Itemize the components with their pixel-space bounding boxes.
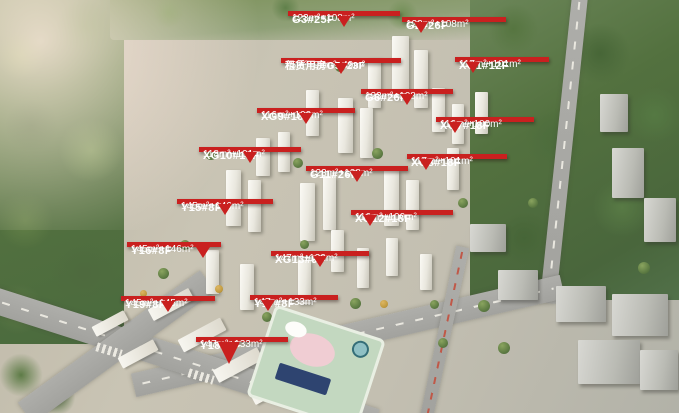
callout-pointer (196, 247, 210, 258)
building-lowrise (118, 339, 159, 368)
tree (498, 342, 510, 354)
building-tower (323, 176, 336, 230)
building-gray (644, 198, 676, 242)
callout-pointer (243, 152, 257, 163)
label-y19-8f: Y19#8F 145m²+145m² (121, 296, 215, 301)
callout-pointer (334, 63, 348, 74)
callout-pointer (448, 122, 462, 133)
tree (458, 198, 468, 208)
callout-pointer (261, 300, 275, 311)
tree (215, 285, 223, 293)
label-xg1-12f: XG1#12F 117m²+101m² (455, 57, 549, 62)
unit-areas: 145m²+146m² (131, 244, 194, 256)
building-gray (600, 94, 628, 132)
tree (438, 338, 448, 348)
callout-pointer (313, 256, 327, 267)
callout-pointer (337, 16, 351, 27)
callout-pointer (161, 301, 175, 312)
building-tower (338, 98, 353, 153)
unit-areas: 145m²+146m² (181, 201, 244, 213)
unit-areas: 75m²+99m²+49m² (285, 60, 365, 72)
building-tower (386, 238, 398, 276)
building-gray (470, 224, 506, 252)
unit-areas: 145m²+145m² (125, 298, 188, 310)
aerial-site-plan: G3#25F 123m²+108m² G2#26F 123m²+108m² 租赁… (0, 0, 679, 413)
callout-pointer (218, 204, 232, 215)
label-y17-8f: Y17#8F 147m²+133m² (250, 295, 338, 300)
tree (528, 198, 538, 208)
building-tower (226, 170, 241, 226)
label-g11-26f: G11#26F 123m²+108m² (306, 166, 408, 171)
label-y16-8f: Y16#8F 145m²+146m² (127, 242, 221, 247)
label-g6-26f: G6#26F 123m²+108m² (361, 89, 453, 94)
building-gray (612, 148, 644, 198)
callout-pointer (363, 215, 377, 226)
unit-areas: 123m²+108m² (365, 91, 428, 103)
callout-pointer (466, 62, 480, 73)
building-tower (420, 254, 432, 290)
callout-pointer (400, 94, 414, 105)
label-g2-26f: G2#26F 123m²+108m² (402, 17, 506, 22)
callout-pointer (350, 171, 364, 182)
unit-areas: 116m²+100m² (261, 110, 323, 122)
tree (380, 300, 388, 308)
building-gray (498, 270, 538, 300)
callout-pointer (419, 159, 433, 170)
tree (300, 240, 309, 249)
building-gray (612, 294, 668, 336)
label-xg7-18f: XG7#18F 116m²+100m² (436, 117, 534, 122)
label-g5-23f: 租赁用房G5#23F 75m²+99m²+49m² (281, 58, 401, 63)
tree (372, 148, 383, 159)
callout-pointer (218, 342, 240, 364)
building-tower (360, 108, 373, 158)
tree (293, 158, 303, 168)
building-gray (640, 350, 678, 390)
building-tower (240, 264, 254, 310)
label-xg8-18f: XG8#18F 117m²+101m² (407, 154, 507, 159)
unit-areas: 147m²+132m² (275, 253, 338, 265)
tree (478, 300, 490, 312)
tree (430, 300, 439, 309)
label-xg12-18f: XG12#18F 116m²+100m² (351, 210, 453, 215)
tree (158, 268, 169, 279)
building-gray (578, 340, 640, 384)
callout-pointer (414, 22, 428, 33)
label-g3-25f: G3#25F 123m²+108m² (288, 11, 400, 16)
label-xg9-18f: XG9#18F 116m²+100m² (257, 108, 355, 113)
building-tower (278, 132, 290, 172)
label-xg13-9f: XG13#9F 147m²+132m² (271, 251, 369, 256)
label-y18-8f: Y18#8F 147m²+133m² (196, 337, 288, 342)
building-gray (556, 286, 606, 322)
label-xg10-18f: XG10#18F 118m²+101m² (199, 147, 301, 152)
tree (638, 262, 650, 274)
tree (350, 298, 361, 309)
callout-pointer (299, 113, 313, 124)
label-y15-8f: Y15#8F 145m²+146m² (177, 199, 273, 204)
building-lowrise (92, 310, 129, 337)
building-tower (248, 180, 261, 232)
building-tower (300, 183, 315, 241)
